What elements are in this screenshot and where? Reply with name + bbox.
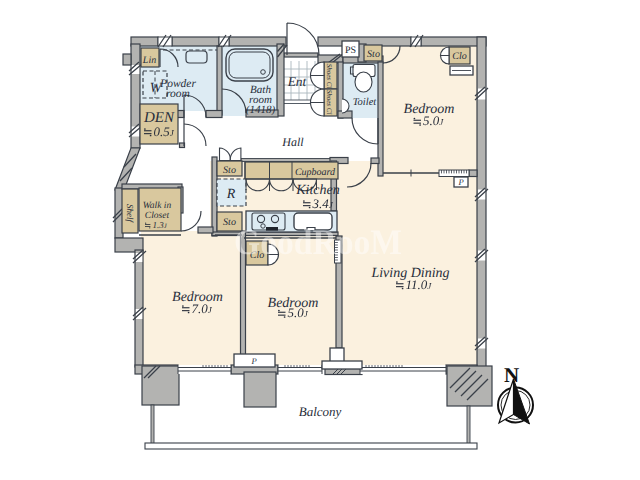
svg-text:R: R: [226, 187, 236, 202]
svg-text:Clo: Clo: [452, 51, 466, 62]
svg-text:Shelf: Shelf: [125, 204, 135, 223]
svg-text:Shoes Cl: Shoes Cl: [325, 90, 333, 115]
svg-text:GoodRooM: GoodRooM: [234, 222, 402, 262]
svg-text:Lin: Lin: [142, 55, 156, 66]
svg-text:Ent: Ent: [287, 74, 308, 89]
svg-text:room: room: [166, 88, 190, 100]
svg-text:Walk in: Walk in: [143, 201, 172, 211]
svg-text:Sto: Sto: [223, 165, 236, 176]
svg-text:Shoes Cl: Shoes Cl: [325, 64, 333, 89]
svg-text:Hall: Hall: [281, 135, 304, 149]
svg-text:Balcony: Balcony: [299, 404, 342, 419]
svg-text:Cupboard: Cupboard: [295, 167, 336, 178]
svg-text:P: P: [457, 177, 463, 187]
svg-text:PS: PS: [345, 45, 356, 56]
svg-text:(1418): (1418): [246, 104, 276, 116]
svg-text:Toilet: Toilet: [353, 97, 378, 108]
svg-text:Sto: Sto: [367, 49, 380, 60]
svg-text:W: W: [150, 81, 163, 96]
svg-text:P: P: [250, 356, 256, 366]
